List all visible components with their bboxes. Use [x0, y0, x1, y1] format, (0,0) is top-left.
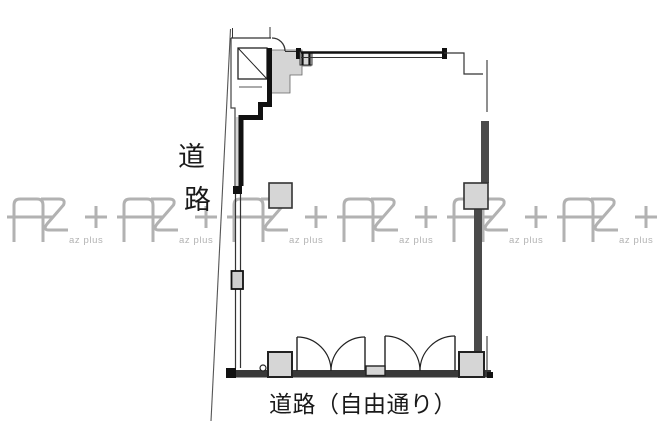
watermark-caption: az plus — [509, 235, 543, 246]
road-boundary-line — [211, 29, 231, 421]
left-road-label-char2: 路 — [184, 187, 211, 214]
column-bottom-right — [459, 352, 484, 377]
bottom-right-corner-block — [487, 372, 493, 378]
column-left-mid — [269, 183, 292, 208]
door-swing-arc — [331, 337, 365, 371]
door-swing-arc — [420, 336, 455, 371]
left-wall-outer-line — [231, 38, 235, 186]
watermark-row: az plus az plus az plus az plus az plus … — [7, 199, 657, 246]
door-center-post — [366, 366, 385, 376]
right-step-line — [444, 53, 483, 74]
right-wall-lower-segment — [474, 209, 482, 353]
floor-plan-page: az plus az plus az plus az plus az plus … — [0, 0, 671, 445]
wall-tick-marks — [233, 27, 271, 38]
watermark-caption: az plus — [69, 235, 103, 246]
watermark-caption: az plus — [399, 235, 433, 246]
door-stop-symbol — [260, 365, 266, 371]
entrance-doors — [297, 336, 455, 376]
floor-plan-drawing: az plus az plus az plus az plus az plus … — [0, 0, 671, 445]
bottom-road-label: 道路（自由通り） — [232, 393, 494, 416]
left-wall-pier — [232, 271, 244, 289]
left-road-label-char1: 道 — [178, 144, 205, 171]
watermark-caption: az plus — [179, 235, 213, 246]
top-door-swing-arc — [272, 38, 285, 51]
column-bottom-left — [268, 352, 292, 377]
wall-cap-block — [233, 186, 242, 194]
watermark-caption: az plus — [619, 235, 653, 246]
door-swing-arc — [297, 337, 331, 371]
watermark-captions: az plus az plus az plus az plus az plus … — [69, 235, 653, 246]
top-window-wall — [296, 48, 447, 65]
bottom-left-corner-block — [226, 368, 236, 378]
watermark-caption: az plus — [289, 235, 323, 246]
column-right-mid — [464, 183, 488, 209]
right-wall-upper-segment — [481, 121, 489, 183]
door-swing-arc — [385, 336, 420, 371]
